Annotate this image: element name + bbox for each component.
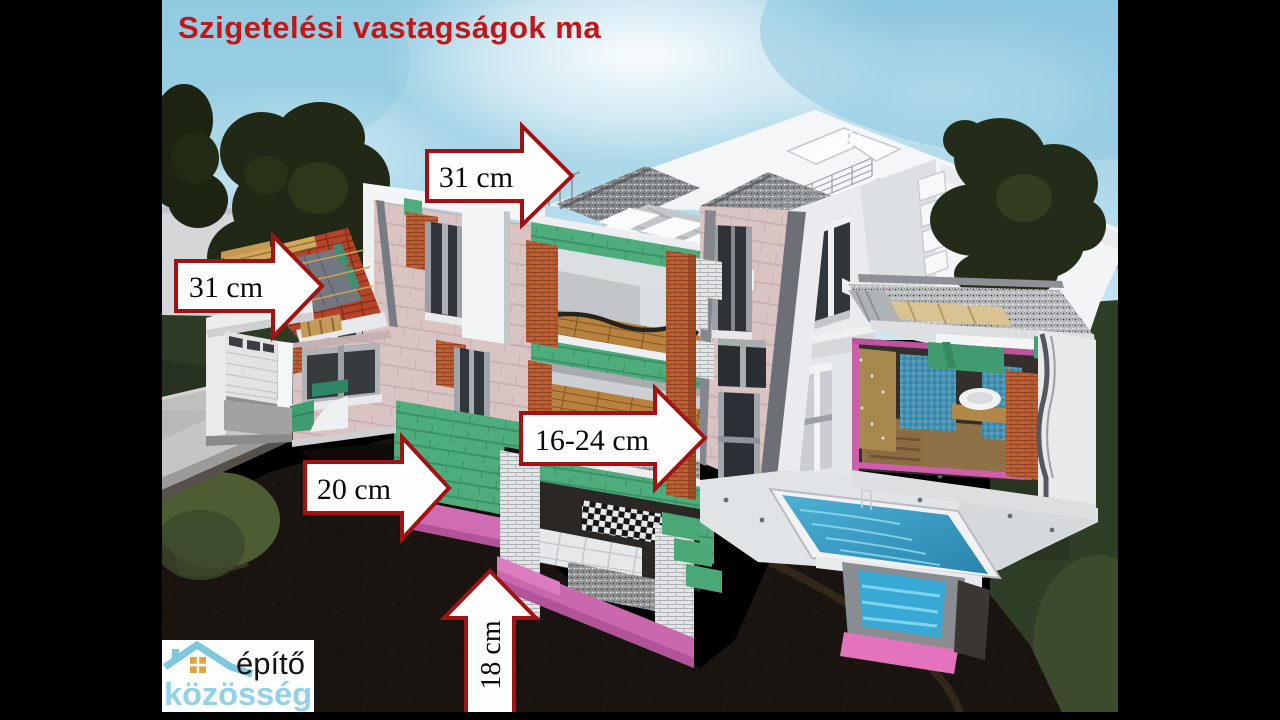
svg-text:18 cm: 18 cm (476, 620, 507, 689)
svg-text:Szigetelési vastagságok ma: Szigetelési vastagságok ma (178, 10, 601, 45)
svg-text:20 cm: 20 cm (317, 473, 391, 506)
svg-text:31 cm: 31 cm (189, 271, 263, 304)
svg-text:31 cm: 31 cm (439, 161, 513, 194)
svg-text:16-24 cm: 16-24 cm (535, 424, 649, 457)
svg-text:közösség: közösség (164, 676, 312, 712)
